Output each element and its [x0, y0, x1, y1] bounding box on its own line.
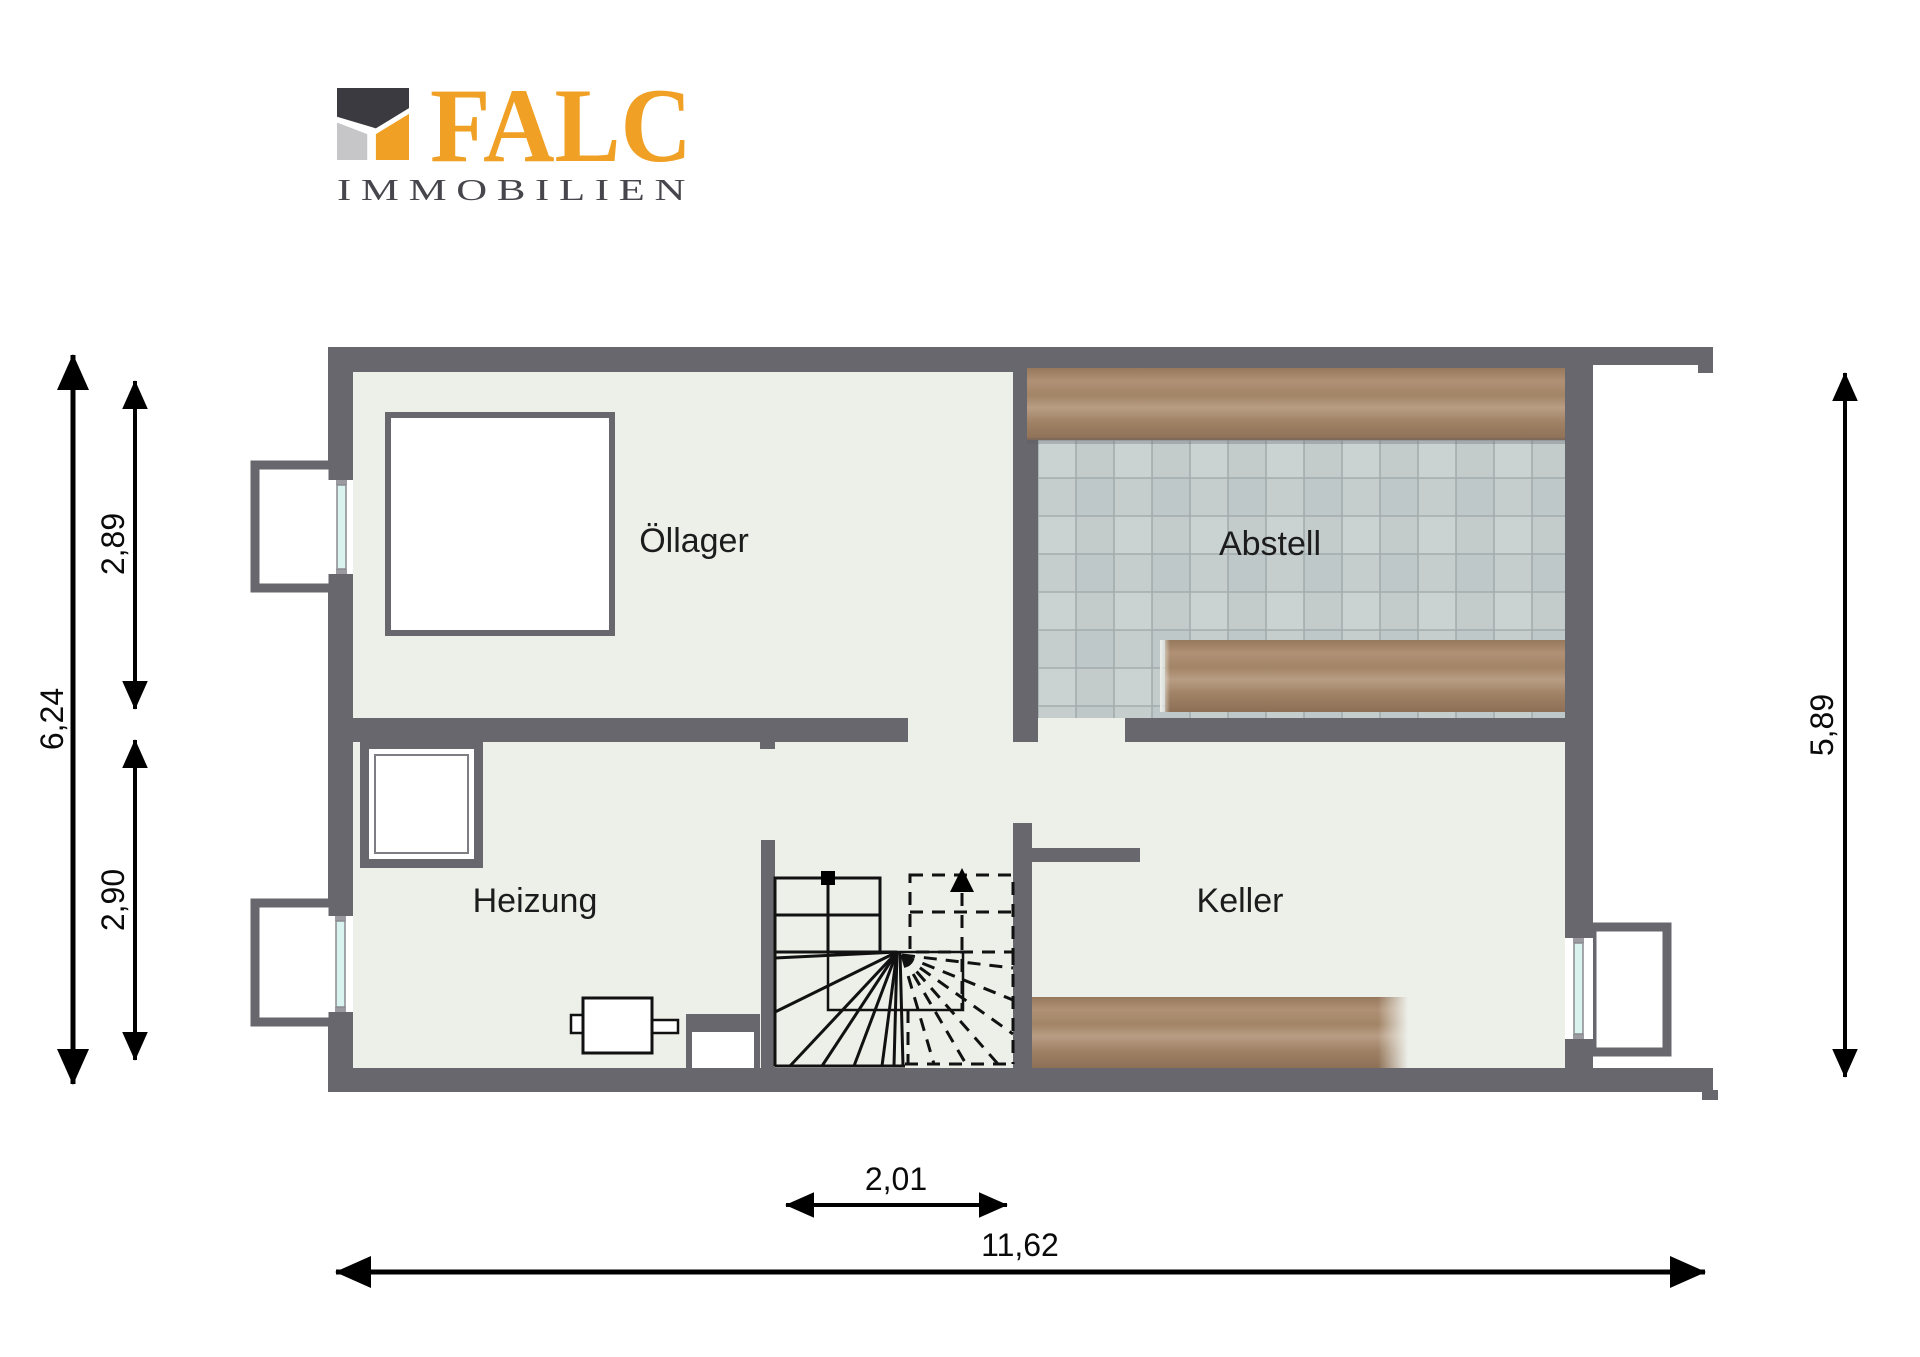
stairs-entry-marker — [821, 871, 835, 885]
wall-top-extension-notch — [1698, 363, 1713, 373]
window-glass — [337, 485, 346, 569]
dimension-left-total: 6,24 — [34, 355, 73, 1084]
dimension-value: 6,24 — [34, 688, 70, 750]
dimension-left-lower: 2,90 — [95, 740, 135, 1060]
boiler-body — [583, 998, 652, 1053]
room-label-oellager: Öllager — [639, 522, 749, 560]
room-label-keller: Keller — [1197, 882, 1284, 920]
wall-middle-left — [353, 718, 908, 742]
wall-top-extension — [1593, 347, 1713, 365]
dimension-value: 5,89 — [1804, 694, 1840, 756]
dimension-value: 2,89 — [95, 513, 131, 575]
wall-abstell-bottom — [1125, 718, 1565, 742]
window-upper-left — [255, 465, 353, 588]
abstell-shelf-bottom — [1160, 640, 1565, 712]
niche-opening — [692, 1032, 754, 1068]
wall-stairs-right — [1013, 823, 1032, 1068]
dimension-value: 11,62 — [981, 1227, 1059, 1263]
dimension-left-upper: 2,89 — [95, 381, 135, 709]
wall-right-upper — [1565, 347, 1593, 940]
window-well — [255, 465, 333, 588]
wall-bottom-extension-notch — [1702, 1090, 1718, 1100]
falc-logo-icon — [337, 88, 409, 160]
chimney-shaft — [360, 740, 483, 868]
dimension-value: 2,01 — [865, 1161, 927, 1197]
dimension-stairs-width: 2,01 — [786, 1161, 1007, 1205]
dimension-value: 2,90 — [95, 869, 131, 931]
wall-middle-nub — [760, 742, 775, 749]
window-keller-right — [1565, 927, 1667, 1052]
dimension-right-total: 5,89 — [1804, 373, 1845, 1077]
wall-keller-door-stub — [1032, 848, 1140, 862]
window-well — [1592, 927, 1667, 1052]
room-label-heizung: Heizung — [473, 882, 598, 920]
window-lower-left — [255, 903, 353, 1022]
window-well — [255, 903, 333, 1022]
window-glass — [1574, 943, 1583, 1034]
wall-stairs-left — [761, 840, 775, 1068]
oil-tank — [388, 415, 612, 633]
room-label-abstell: Abstell — [1219, 525, 1321, 563]
abstell-shelf-top — [1027, 368, 1565, 444]
boiler-left-tab — [571, 1015, 583, 1033]
dimension-bottom-total: 11,62 — [336, 1227, 1705, 1272]
floorplan-canvas: FALC IMMOBILIEN — [0, 0, 1920, 1357]
brand-subtitle: IMMOBILIEN — [337, 172, 695, 207]
brand-name: FALC — [430, 67, 692, 184]
brand-logo: FALC IMMOBILIEN — [337, 67, 695, 207]
window-glass — [336, 921, 345, 1007]
keller-shelf — [1032, 997, 1408, 1068]
boiler-right-tab — [652, 1020, 678, 1033]
logo-left-shape — [337, 123, 367, 160]
wall-bottom — [328, 1068, 1713, 1092]
floorplan-page: FALC IMMOBILIEN — [0, 0, 1920, 1357]
